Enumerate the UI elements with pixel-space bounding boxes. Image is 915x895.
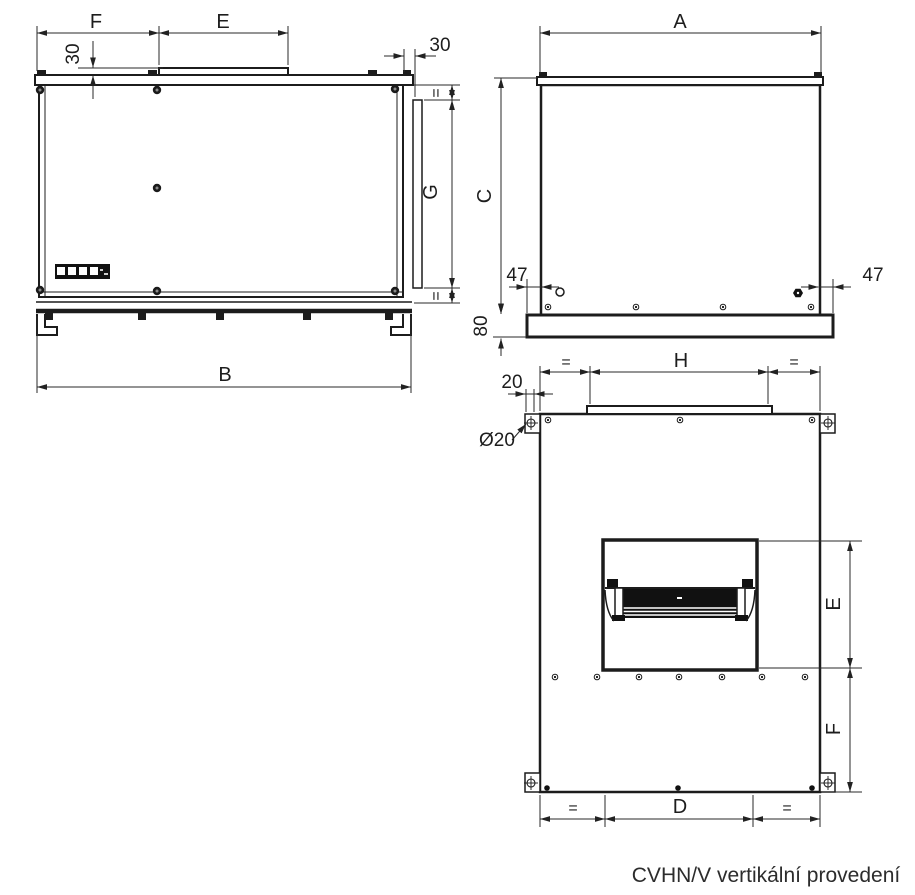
dim-label-30-collar: 30 (63, 43, 84, 64)
technical-drawing-page: F E 30 30 = G = (0, 0, 915, 895)
dim-D-chain: = D = (540, 795, 820, 827)
vertical-duct-collar (587, 406, 772, 414)
hex-nut-center (797, 292, 799, 294)
dimension-drawing: F E 30 30 = G = (0, 0, 915, 895)
hole-callout: Ø20 (479, 424, 526, 451)
dim-80: 80 (471, 296, 526, 356)
base-tab (138, 313, 146, 320)
dim-label-47-left: 47 (506, 265, 527, 286)
dim-label-G: G (420, 184, 442, 200)
dim-20: 20 (501, 372, 553, 412)
corner-bracket-bottom-right (820, 773, 835, 792)
cap-tab (37, 70, 46, 75)
dim-label-47-right: 47 (862, 265, 883, 286)
front-unit-body (541, 85, 820, 315)
corner-bracket-top-left (524, 414, 540, 433)
corner-bracket-bottom-left (524, 773, 540, 792)
base-tab (45, 313, 53, 320)
front-top-panel (537, 77, 823, 85)
vertical-view: = H = 20 Ø20 E F (479, 350, 862, 827)
side-top-panel (35, 75, 413, 85)
dim-label-H: H (674, 350, 688, 372)
foot-right (391, 314, 411, 335)
side-duct-collar (159, 68, 288, 75)
dim-label-F-vertical: F (823, 723, 845, 735)
dim-label-D: D (673, 796, 687, 818)
dim-label-eq-bottom: = (428, 291, 445, 300)
cap-tab (148, 70, 157, 75)
base-tab (216, 313, 224, 320)
corner-bracket-top-right (820, 414, 835, 433)
dim-label-B: B (218, 364, 231, 386)
dim-A: A (540, 11, 821, 74)
dim-label-eq-bottom-right: = (782, 800, 791, 817)
dim-label-20: 20 (501, 372, 522, 393)
front-base-plinth (527, 315, 833, 337)
dim-label-C: C (474, 189, 496, 203)
front-view: A C 80 47 47 (471, 11, 884, 356)
control-panel (55, 264, 110, 279)
cap-tab (368, 70, 377, 75)
dim-label-A: A (673, 11, 687, 33)
dim-label-eq-left: = (561, 354, 570, 371)
dim-label-80: 80 (471, 315, 492, 336)
dim-H-chain: = H = (540, 350, 820, 411)
dim-B: B (37, 316, 411, 393)
dim-label-eq-top: = (428, 88, 445, 97)
side-view: F E 30 30 = G = (35, 11, 460, 393)
dim-label-E: E (216, 11, 229, 33)
dim-label-eq-right: = (789, 354, 798, 371)
dim-label-E-vertical: E (823, 597, 845, 610)
dim-label-F: F (90, 11, 102, 33)
base-tab (385, 313, 393, 320)
dim-label-eq-bottom-left: = (568, 800, 577, 817)
dim-label-30-offset: 30 (429, 35, 450, 56)
drawing-caption: CVHN/V vertikální provedení (632, 864, 901, 887)
hole-diameter-label: Ø20 (479, 430, 515, 451)
base-tab (303, 313, 311, 320)
